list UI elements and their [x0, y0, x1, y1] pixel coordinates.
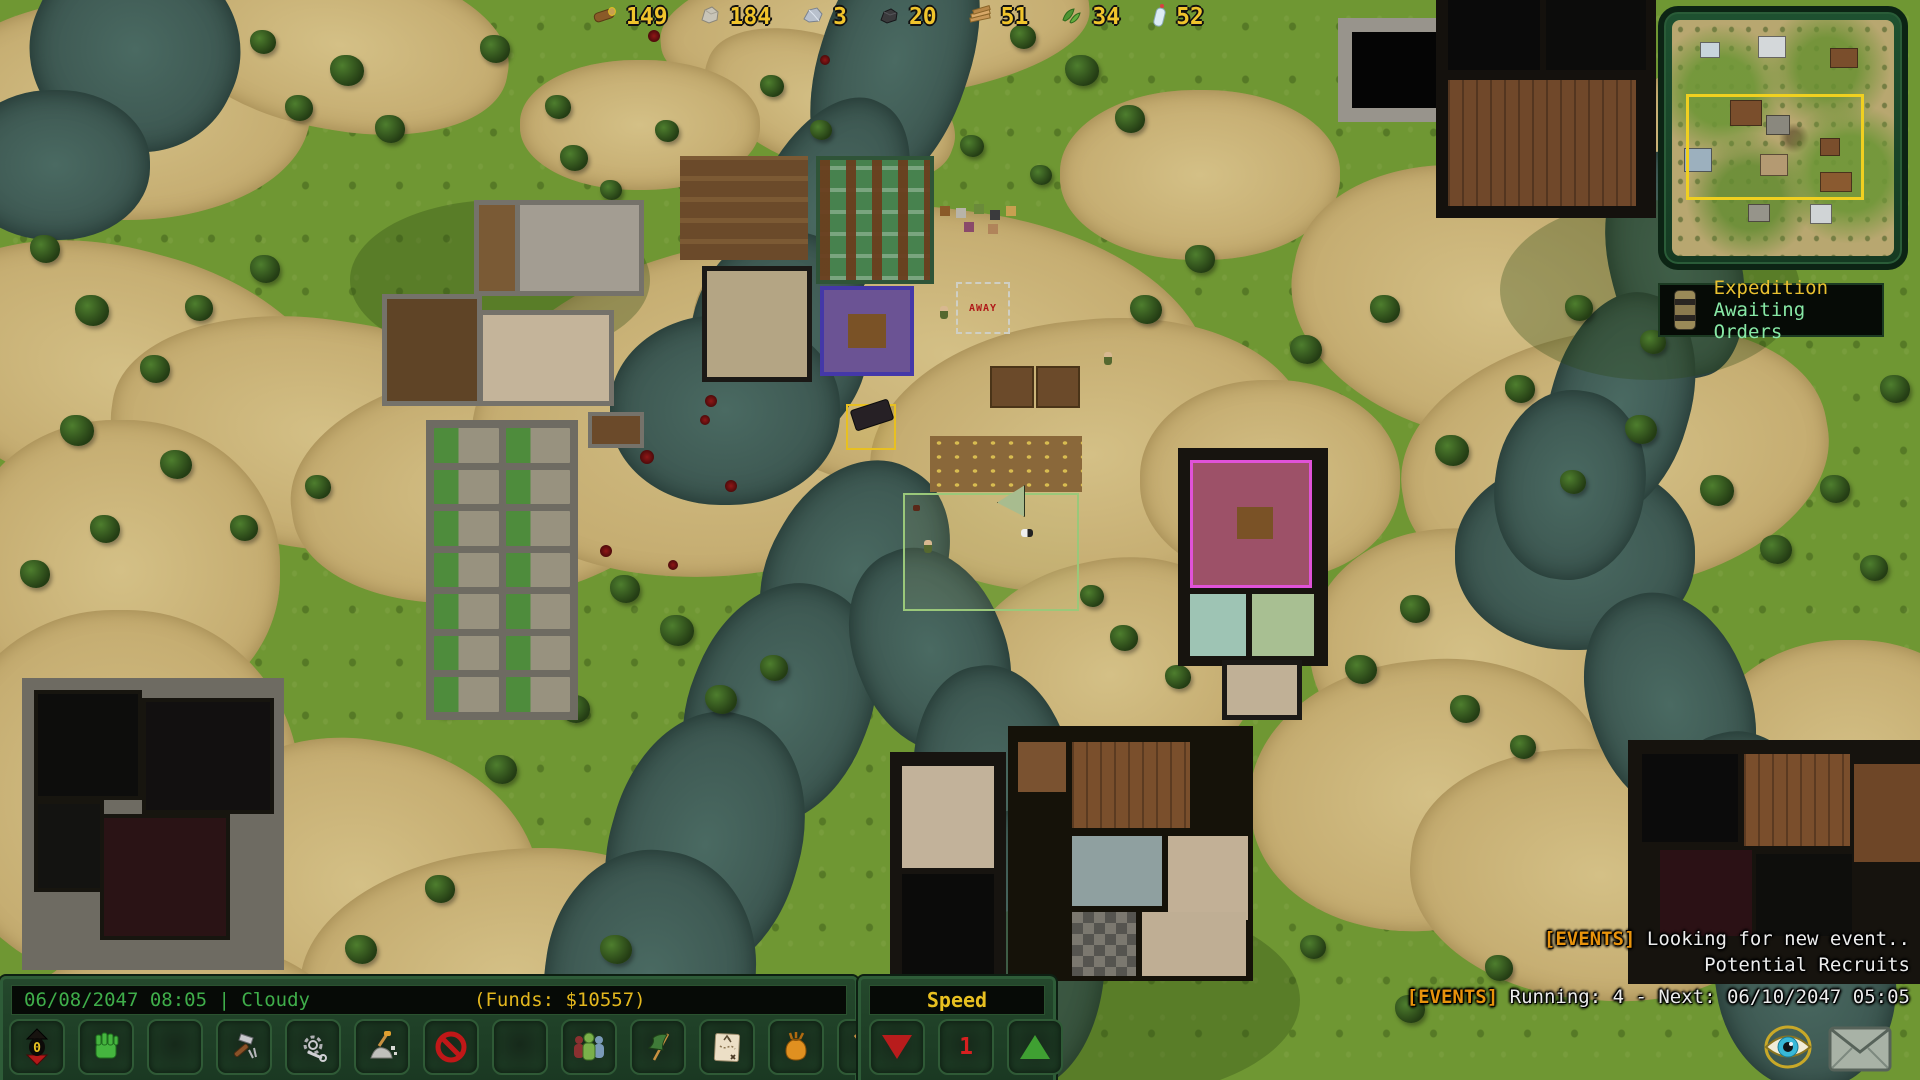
minimap-viewport[interactable]	[1686, 94, 1864, 200]
bedroom-cell	[506, 553, 571, 588]
minimap-content	[1672, 20, 1894, 256]
room-maroon	[1660, 850, 1752, 936]
minimap-building	[1830, 48, 1858, 68]
tree	[600, 935, 632, 964]
room-dark-1	[1448, 0, 1540, 70]
room-dark	[902, 874, 994, 978]
tree	[480, 35, 510, 63]
expedition-status: Awaiting Orders	[1714, 299, 1882, 343]
minimap-building	[1748, 204, 1770, 222]
crafting-button[interactable]	[285, 1019, 341, 1075]
log-icon	[592, 3, 618, 31]
tree	[610, 575, 640, 603]
tree	[1130, 295, 1162, 324]
minimap-building	[1700, 42, 1720, 58]
minimap-building	[1758, 36, 1786, 58]
cow	[1021, 529, 1033, 537]
room-wood-2	[1854, 764, 1920, 862]
tree	[560, 145, 588, 171]
red-bush	[640, 450, 654, 464]
building-room-kitchen	[382, 294, 482, 406]
tree	[1165, 665, 1191, 689]
population-button[interactable]	[561, 1019, 617, 1075]
tree	[230, 515, 258, 541]
colonist[interactable]	[940, 306, 948, 319]
resource-water: 52	[1150, 2, 1204, 32]
datetime-weather: 06/08/2047 08:05 | Cloudy	[24, 989, 310, 1011]
event-line-1: [EVENTS] Looking for new event..	[1407, 926, 1910, 952]
tree	[1560, 470, 1586, 494]
room-pink	[1190, 460, 1312, 588]
tree	[1345, 655, 1377, 684]
tree	[1080, 585, 1104, 607]
room-wood-1	[1744, 754, 1850, 846]
tree	[1115, 105, 1145, 133]
bedroom-cell	[434, 636, 499, 671]
tree	[1110, 625, 1138, 651]
room-dark-3	[34, 800, 104, 892]
tree	[1400, 595, 1430, 623]
dig-button[interactable]	[354, 1019, 410, 1075]
red-bush	[600, 545, 612, 557]
minimap-building	[1810, 204, 1832, 224]
tree	[330, 55, 364, 86]
red-bush	[668, 560, 678, 570]
bedroom-cell	[434, 511, 499, 546]
tree	[1860, 555, 1888, 581]
tree	[185, 295, 213, 321]
triangle-down-icon	[882, 1035, 912, 1059]
tree	[760, 655, 788, 681]
event-line-2: Potential Recruits	[1407, 952, 1910, 978]
garden-plot	[588, 412, 644, 448]
orders-button[interactable]	[78, 1019, 134, 1075]
tree	[655, 120, 679, 142]
tree	[810, 120, 832, 140]
room-wood-large	[1072, 742, 1190, 828]
tree	[660, 615, 694, 646]
tree	[760, 75, 784, 97]
room-dark-2	[1756, 854, 1852, 936]
speed-value-display: 1	[938, 1019, 994, 1075]
room-bedroom-teal	[1190, 594, 1246, 656]
zones-button[interactable]	[630, 1019, 686, 1075]
room-beige	[902, 766, 994, 868]
away-zone-label: AWAY	[969, 303, 997, 314]
building-room-barracks	[816, 156, 934, 284]
building-room-dining	[478, 310, 614, 406]
resource-coal: 20	[877, 2, 937, 32]
away-zone: AWAY	[956, 282, 1010, 334]
empty-slot[interactable]	[147, 1019, 203, 1075]
room-bedroom-green	[1252, 594, 1314, 656]
resource-planks: 51	[967, 2, 1029, 32]
tree	[600, 180, 622, 200]
tree	[960, 135, 984, 157]
table	[1237, 507, 1273, 539]
tree	[1625, 415, 1657, 444]
speed-down-button[interactable]	[869, 1019, 925, 1075]
tree	[485, 755, 517, 784]
bedroom-cell	[434, 553, 499, 588]
tree	[1370, 295, 1400, 323]
bottom-panel: 06/08/2047 08:05 | Cloudy (Funds: $10557…	[0, 976, 858, 1080]
bedroom-cell	[434, 677, 499, 712]
tree	[60, 415, 94, 446]
tree	[375, 115, 405, 143]
bedroom-cell	[434, 594, 499, 629]
coal-icon	[877, 4, 901, 30]
room-dark-2	[1546, 0, 1646, 70]
farm-rows	[680, 156, 808, 260]
status-bar: 06/08/2047 08:05 | Cloudy (Funds: $10557…	[11, 985, 847, 1015]
bedroom-cell	[506, 511, 571, 546]
toolbar: 0	[9, 1019, 893, 1075]
table	[848, 314, 886, 348]
expedition-panel[interactable]: Expedition Awaiting Orders	[1658, 283, 1884, 337]
tree	[1565, 295, 1593, 321]
tree	[250, 30, 276, 54]
building-room-annex	[1222, 660, 1302, 720]
tree	[1505, 375, 1535, 403]
bedroom-cell	[506, 677, 571, 712]
tree	[1760, 535, 1792, 564]
events-log: [EVENTS] Looking for new event.. Potenti…	[1407, 926, 1910, 1010]
crop-field	[930, 436, 1082, 492]
forbid-button[interactable]	[423, 1019, 479, 1075]
tree	[1030, 165, 1052, 185]
build-button[interactable]	[216, 1019, 272, 1075]
red-bush	[725, 480, 737, 492]
resource-wood: 149	[592, 2, 668, 32]
room-dark-2	[142, 698, 274, 814]
elevation-level: 0	[33, 1041, 41, 1056]
plants-icon	[1058, 4, 1084, 30]
triangle-up-icon	[1020, 1035, 1050, 1059]
event-line-3: [EVENTS] Running: 4 - Next: 06/10/2047 0…	[1407, 984, 1910, 1010]
speed-panel: Speed 1	[858, 976, 1056, 1080]
building-pink-house	[1178, 448, 1328, 666]
building-bedroom-block	[426, 420, 578, 720]
resource-bar: 149 184 3 20 51 34 52	[592, 2, 1204, 32]
resource-silver: 3	[801, 2, 847, 32]
red-bush	[700, 415, 710, 425]
stockpile-yard	[940, 206, 950, 216]
room-beige-2	[1142, 912, 1246, 976]
room-black	[1352, 32, 1448, 108]
game-screen: AWAY 149 184 3 20 51 34 52	[0, 0, 1920, 1080]
planter-box-2	[1036, 366, 1080, 408]
empty-slot[interactable]	[492, 1019, 548, 1075]
tree	[1880, 375, 1910, 403]
tree	[285, 95, 313, 121]
bedroom-cell	[506, 594, 571, 629]
red-bush	[705, 395, 717, 407]
room-checker	[1072, 912, 1136, 976]
tree	[75, 295, 109, 326]
room-wood	[1448, 80, 1636, 206]
envelope-icon	[1828, 1026, 1892, 1072]
resource-plants: 34	[1058, 2, 1120, 32]
bedroom-cell	[506, 636, 571, 671]
building-room-workshop	[702, 266, 812, 382]
building-room-dining-purple	[820, 286, 914, 376]
room-wood-small	[1018, 742, 1066, 792]
room-maroon	[100, 814, 230, 940]
tree	[1290, 335, 1322, 364]
tree	[90, 515, 120, 543]
pen-animals	[913, 505, 920, 511]
tree	[425, 875, 455, 903]
planks-icon	[967, 3, 993, 31]
tree	[30, 235, 60, 263]
building-right-block	[1008, 726, 1253, 981]
building-top-right	[1436, 0, 1656, 218]
speed-title: Speed	[927, 988, 987, 1012]
room-dark-1	[34, 690, 142, 800]
tree	[1065, 55, 1099, 86]
selection-box	[846, 404, 896, 450]
tree	[305, 475, 331, 499]
colonist[interactable]	[924, 540, 932, 553]
room-dark-1	[1642, 754, 1738, 842]
mail-button[interactable]	[1828, 1026, 1892, 1076]
building-room-courtyard	[514, 200, 644, 296]
building-room-hall	[474, 200, 520, 296]
building-left-block	[890, 752, 1006, 987]
tree	[140, 355, 170, 383]
colonist[interactable]	[1104, 352, 1112, 365]
expedition-title: Expedition	[1714, 277, 1882, 299]
silver-icon	[801, 4, 825, 30]
sand-patch	[1060, 90, 1340, 260]
eye-icon	[1760, 1020, 1816, 1074]
tree	[1185, 245, 1215, 273]
funds: (Funds: $10557)	[474, 989, 646, 1011]
expedition-map-button[interactable]	[699, 1019, 755, 1075]
overview-eye-button[interactable]	[1760, 1020, 1816, 1078]
tree	[1820, 475, 1850, 503]
tree	[1450, 695, 1480, 723]
tree	[20, 560, 50, 588]
planter-box-1	[990, 366, 1034, 408]
resource-stone: 184	[698, 2, 772, 32]
stockpile-button[interactable]	[768, 1019, 824, 1075]
building-bottom-left	[22, 678, 284, 970]
wagon-icon	[1674, 290, 1696, 330]
tree	[1300, 935, 1326, 959]
game-map[interactable]: AWAY	[0, 0, 1920, 1080]
red-bush	[820, 55, 830, 65]
room-grayblue	[1072, 836, 1162, 906]
water-bottle-icon	[1150, 2, 1168, 32]
bedroom-cell	[434, 470, 499, 505]
tree	[250, 255, 280, 283]
bedroom-cell	[506, 470, 571, 505]
tree	[345, 935, 377, 964]
bedroom-cell	[506, 428, 571, 463]
room-beige	[1168, 836, 1248, 920]
speed-up-button[interactable]	[1007, 1019, 1063, 1075]
expedition-wagon[interactable]	[850, 398, 895, 431]
tree	[160, 450, 192, 479]
bedroom-cell	[434, 428, 499, 463]
elevation-button[interactable]: 0	[9, 1019, 65, 1075]
tree	[1700, 475, 1734, 506]
tree	[1510, 735, 1536, 759]
tree	[1435, 435, 1469, 466]
stone-icon	[698, 3, 722, 31]
tree	[545, 95, 571, 119]
minimap[interactable]	[1658, 6, 1908, 270]
speed-header: Speed	[869, 985, 1045, 1015]
tree	[705, 685, 737, 714]
